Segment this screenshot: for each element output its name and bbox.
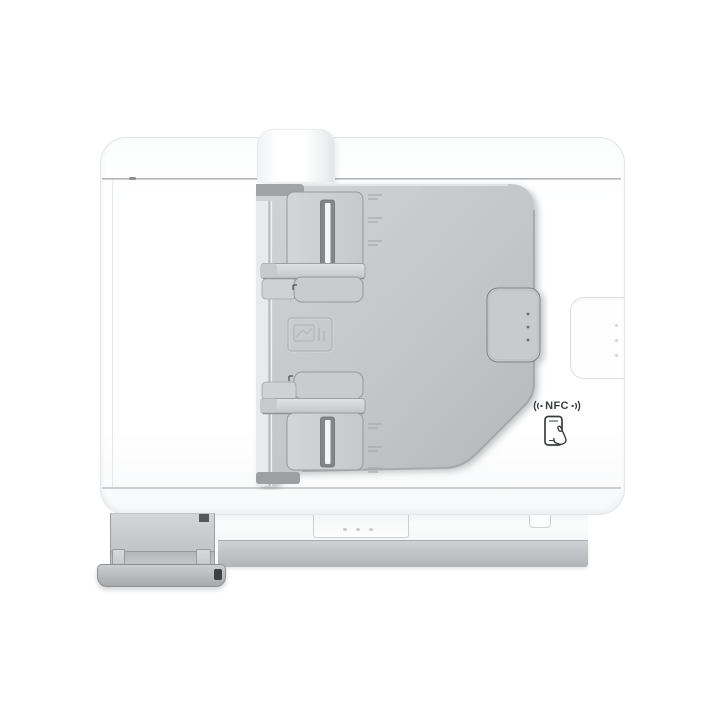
guide-rail (256, 184, 269, 486)
nfc-mark: NFC (533, 400, 581, 412)
printer-product-photo: NFC (0, 0, 720, 720)
panel-dot (369, 528, 373, 531)
adf-tray-latch-recess[interactable] (487, 288, 540, 362)
tray-top-cap-step (256, 196, 280, 201)
body-left-seam (112, 180, 113, 487)
extension-notch (214, 569, 222, 580)
adf-hinge-cover (257, 129, 335, 182)
tray-bottom-cap (256, 472, 300, 484)
scanner-lid-handle-recess (570, 297, 624, 379)
recess-dot (615, 339, 618, 342)
seam-notch (129, 177, 136, 180)
front-door-panel[interactable] (313, 512, 409, 538)
printer-base (218, 540, 588, 567)
output-tray-extension[interactable] (97, 564, 226, 587)
adf-paper-tray (250, 178, 548, 490)
nfc-signal-wave-left-icon (533, 400, 543, 412)
nfc-label: NFC (545, 400, 569, 412)
panel-dot (343, 528, 347, 531)
nfc-tap-zone[interactable]: NFC (527, 400, 587, 451)
panel-dot (356, 528, 360, 531)
smartphone-tap-icon (542, 415, 572, 451)
flap-latch-mark (199, 514, 209, 522)
recess-dot (615, 324, 618, 327)
nfc-signal-wave-right-icon (571, 400, 581, 412)
recess-dot (615, 354, 618, 357)
